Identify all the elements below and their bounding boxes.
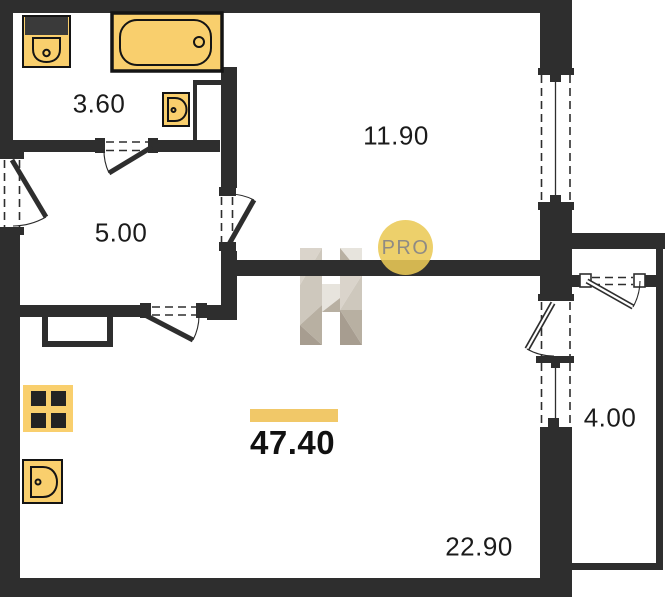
bathroom-wall-right-seg	[156, 140, 220, 152]
bedroom-door	[222, 194, 255, 246]
watermark-pro-badge: PRO	[378, 220, 433, 275]
wall-left-upper	[0, 13, 13, 152]
area-label-balcony: 4.00	[584, 403, 637, 434]
hallway-wall-right-seg	[207, 305, 237, 320]
wall-top	[0, 0, 572, 13]
door-jamb	[196, 303, 207, 318]
living-room-door	[145, 307, 199, 340]
shaft-wall-top	[193, 80, 223, 85]
toilet	[23, 16, 70, 67]
washbasin	[163, 93, 189, 126]
shaft-wall-left	[193, 80, 197, 140]
entrance-door	[5, 160, 47, 227]
wall-bottom	[0, 578, 572, 597]
bathroom-wall-left-seg	[0, 140, 97, 152]
wall-left-lower	[0, 235, 20, 597]
window-sill	[538, 202, 574, 210]
hallway-wall-left-seg	[20, 305, 142, 317]
area-label-bathroom: 3.60	[73, 89, 126, 120]
wall-right-mid-block	[540, 210, 572, 295]
balcony-wall-top-thick	[572, 233, 665, 249]
window-sill	[538, 68, 574, 75]
kitchen-sink	[23, 460, 62, 503]
door-jamb-cap	[538, 294, 574, 301]
window-bedroom	[542, 74, 571, 203]
total-area-accent-bar	[250, 409, 338, 422]
balcony-door-from-living-room	[527, 303, 554, 356]
wall-right-lower-block	[540, 427, 572, 597]
balcony-wall-right	[656, 249, 663, 570]
total-area-label: 47.40	[250, 424, 335, 462]
stove	[23, 385, 73, 432]
interior-wall-upper	[221, 67, 237, 188]
balcony-door-wall-left	[572, 275, 580, 287]
bathtub	[112, 13, 222, 71]
area-label-bedroom: 11.90	[363, 121, 429, 152]
balcony-wall-bottom	[572, 563, 663, 570]
duct-wall-bottom	[42, 341, 113, 347]
balcony-door	[580, 274, 645, 307]
area-label-living-room: 22.90	[445, 532, 513, 563]
entrance-sill-top	[0, 151, 24, 159]
wall-right-upper-block	[540, 13, 572, 69]
wall-mid-horizontal	[223, 260, 540, 276]
pro-label: PRO	[382, 237, 430, 259]
fixtures	[23, 13, 222, 503]
bathroom-door	[104, 142, 152, 173]
floor-plan: PRO 3.60 5.00 11.90 22.90 4.00 47.40	[0, 0, 665, 600]
entrance-sill-bottom	[0, 227, 24, 235]
area-label-hallway: 5.00	[95, 218, 148, 249]
